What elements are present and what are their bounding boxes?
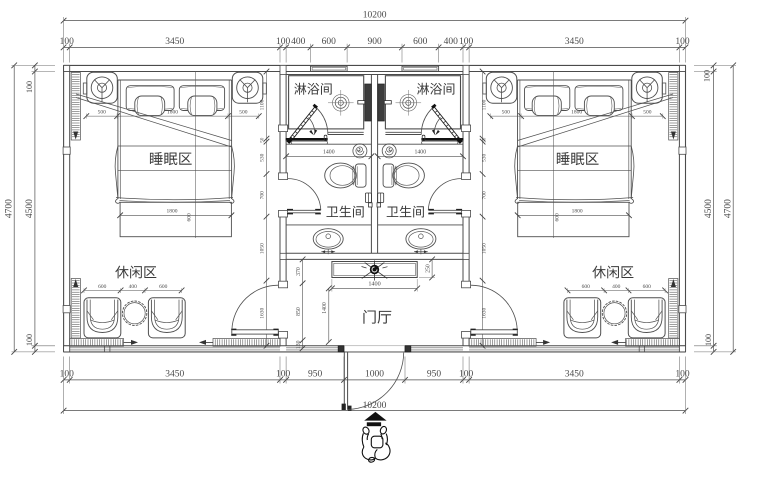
svg-text:100: 100 [704, 334, 713, 346]
svg-text:3450: 3450 [165, 370, 184, 380]
svg-text:4500: 4500 [25, 199, 35, 218]
svg-text:500: 500 [502, 109, 511, 115]
svg-text:50: 50 [483, 137, 488, 143]
svg-text:100: 100 [276, 370, 291, 380]
svg-text:600: 600 [322, 37, 337, 47]
svg-text:1050: 1050 [259, 243, 265, 254]
svg-text:1400: 1400 [323, 150, 335, 156]
svg-text:100: 100 [60, 370, 75, 380]
svg-text:100: 100 [60, 37, 75, 47]
svg-text:700: 700 [259, 191, 265, 200]
svg-text:600: 600 [643, 284, 652, 290]
svg-text:400: 400 [129, 284, 138, 290]
svg-text:400: 400 [612, 284, 621, 290]
svg-text:1630: 1630 [482, 307, 488, 318]
svg-text:500: 500 [239, 109, 248, 115]
svg-text:600: 600 [555, 213, 561, 222]
svg-text:1400: 1400 [415, 150, 427, 156]
svg-text:100: 100 [276, 37, 291, 47]
svg-text:250: 250 [425, 264, 431, 273]
svg-text:3450: 3450 [565, 370, 584, 380]
svg-text:130: 130 [296, 340, 302, 349]
svg-text:100: 100 [675, 37, 690, 47]
svg-text:1800: 1800 [167, 209, 178, 215]
svg-text:100: 100 [703, 70, 712, 82]
svg-text:100: 100 [459, 37, 474, 47]
svg-text:3450: 3450 [565, 37, 584, 47]
svg-text:10200: 10200 [363, 11, 387, 21]
svg-text:530: 530 [482, 153, 488, 162]
svg-text:50: 50 [260, 137, 265, 143]
svg-text:1800: 1800 [167, 109, 178, 115]
svg-text:500: 500 [643, 109, 652, 115]
svg-text:1100: 1100 [259, 99, 265, 110]
svg-text:4500: 4500 [704, 199, 714, 218]
svg-text:1630: 1630 [259, 307, 265, 318]
svg-text:1000: 1000 [365, 370, 384, 380]
svg-text:4700: 4700 [5, 199, 15, 218]
svg-text:600: 600 [413, 37, 428, 47]
svg-text:1800: 1800 [571, 109, 582, 115]
svg-text:100: 100 [459, 370, 474, 380]
svg-text:950: 950 [427, 370, 442, 380]
svg-text:1800: 1800 [572, 209, 583, 215]
svg-text:1400: 1400 [368, 281, 380, 288]
svg-text:600: 600 [582, 284, 591, 290]
svg-text:600: 600 [159, 284, 168, 290]
svg-text:100: 100 [675, 370, 690, 380]
svg-text:1050: 1050 [482, 243, 488, 254]
svg-text:700: 700 [482, 191, 488, 200]
svg-text:1100: 1100 [482, 99, 488, 110]
svg-text:600: 600 [187, 213, 193, 222]
svg-text:500: 500 [98, 109, 107, 115]
svg-text:370: 370 [296, 267, 302, 276]
svg-text:400: 400 [291, 37, 306, 47]
svg-text:900: 900 [367, 37, 382, 47]
svg-text:3450: 3450 [165, 37, 184, 47]
svg-text:100: 100 [25, 334, 34, 346]
svg-text:4700: 4700 [724, 199, 734, 218]
svg-text:850: 850 [296, 307, 302, 316]
svg-text:530: 530 [259, 153, 265, 162]
svg-text:400: 400 [444, 37, 459, 47]
svg-text:1400: 1400 [322, 302, 328, 314]
svg-text:100: 100 [25, 81, 34, 93]
svg-text:950: 950 [308, 370, 323, 380]
svg-text:600: 600 [98, 284, 107, 290]
